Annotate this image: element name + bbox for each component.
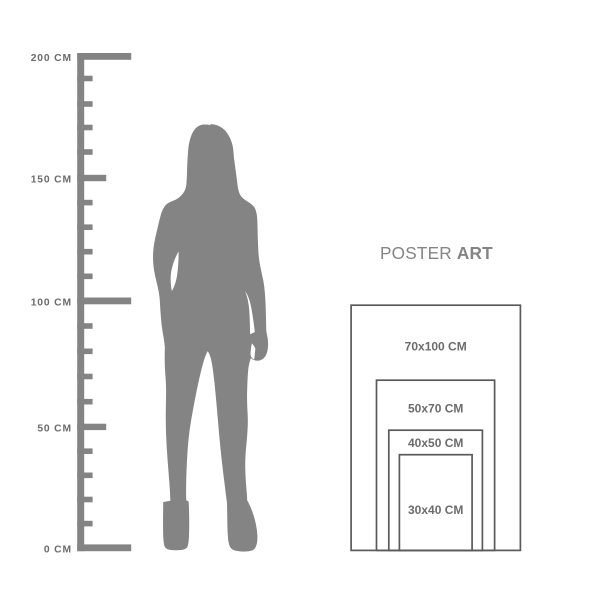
svg-text:50 CM: 50 CM xyxy=(37,424,72,435)
svg-text:POSTER ART: POSTER ART xyxy=(380,243,493,263)
svg-text:200 CM: 200 CM xyxy=(31,53,72,64)
svg-text:150 CM: 150 CM xyxy=(31,175,72,186)
svg-text:50x70 CM: 50x70 CM xyxy=(408,401,463,415)
svg-text:40x50 CM: 40x50 CM xyxy=(408,436,463,450)
svg-text:0 CM: 0 CM xyxy=(44,544,72,555)
svg-text:30x40 CM: 30x40 CM xyxy=(408,503,463,517)
svg-text:70x100 CM: 70x100 CM xyxy=(405,340,467,354)
svg-text:100 CM: 100 CM xyxy=(31,298,72,309)
